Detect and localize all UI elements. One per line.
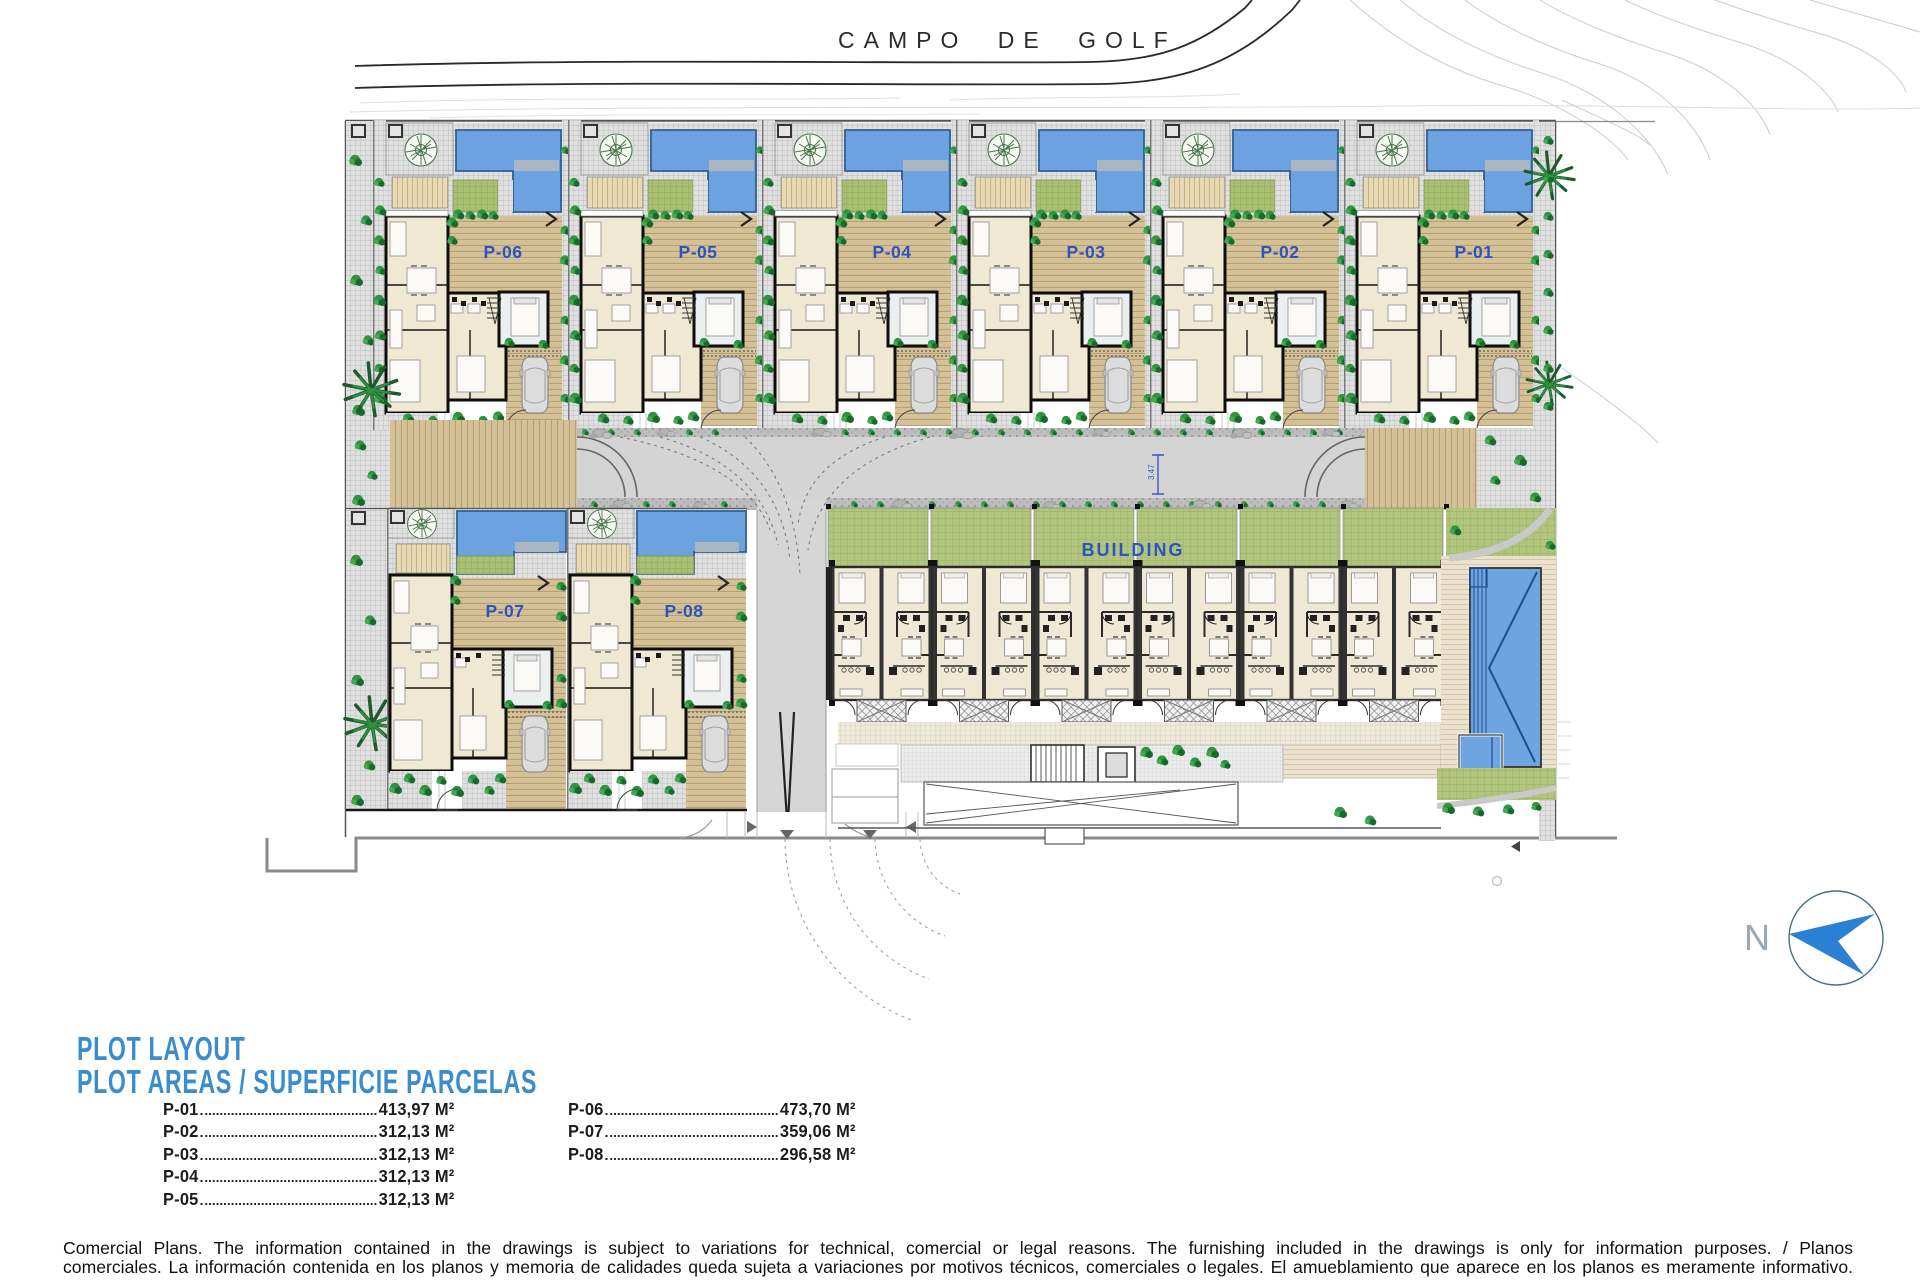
svg-text:P-06: P-06: [484, 242, 523, 262]
svg-text:N: N: [1744, 917, 1770, 958]
svg-text:P-04: P-04: [873, 242, 912, 262]
svg-text:P-08: P-08: [665, 601, 704, 621]
svg-text:P-07: P-07: [486, 601, 525, 621]
svg-text:P-01: P-01: [1455, 242, 1494, 262]
svg-text:BUILDING: BUILDING: [1082, 540, 1185, 560]
svg-text:P-03: P-03: [1067, 242, 1106, 262]
svg-text:P-05: P-05: [679, 242, 718, 262]
svg-text:P-02: P-02: [1261, 242, 1300, 262]
svg-text:3.47: 3.47: [1147, 464, 1156, 480]
